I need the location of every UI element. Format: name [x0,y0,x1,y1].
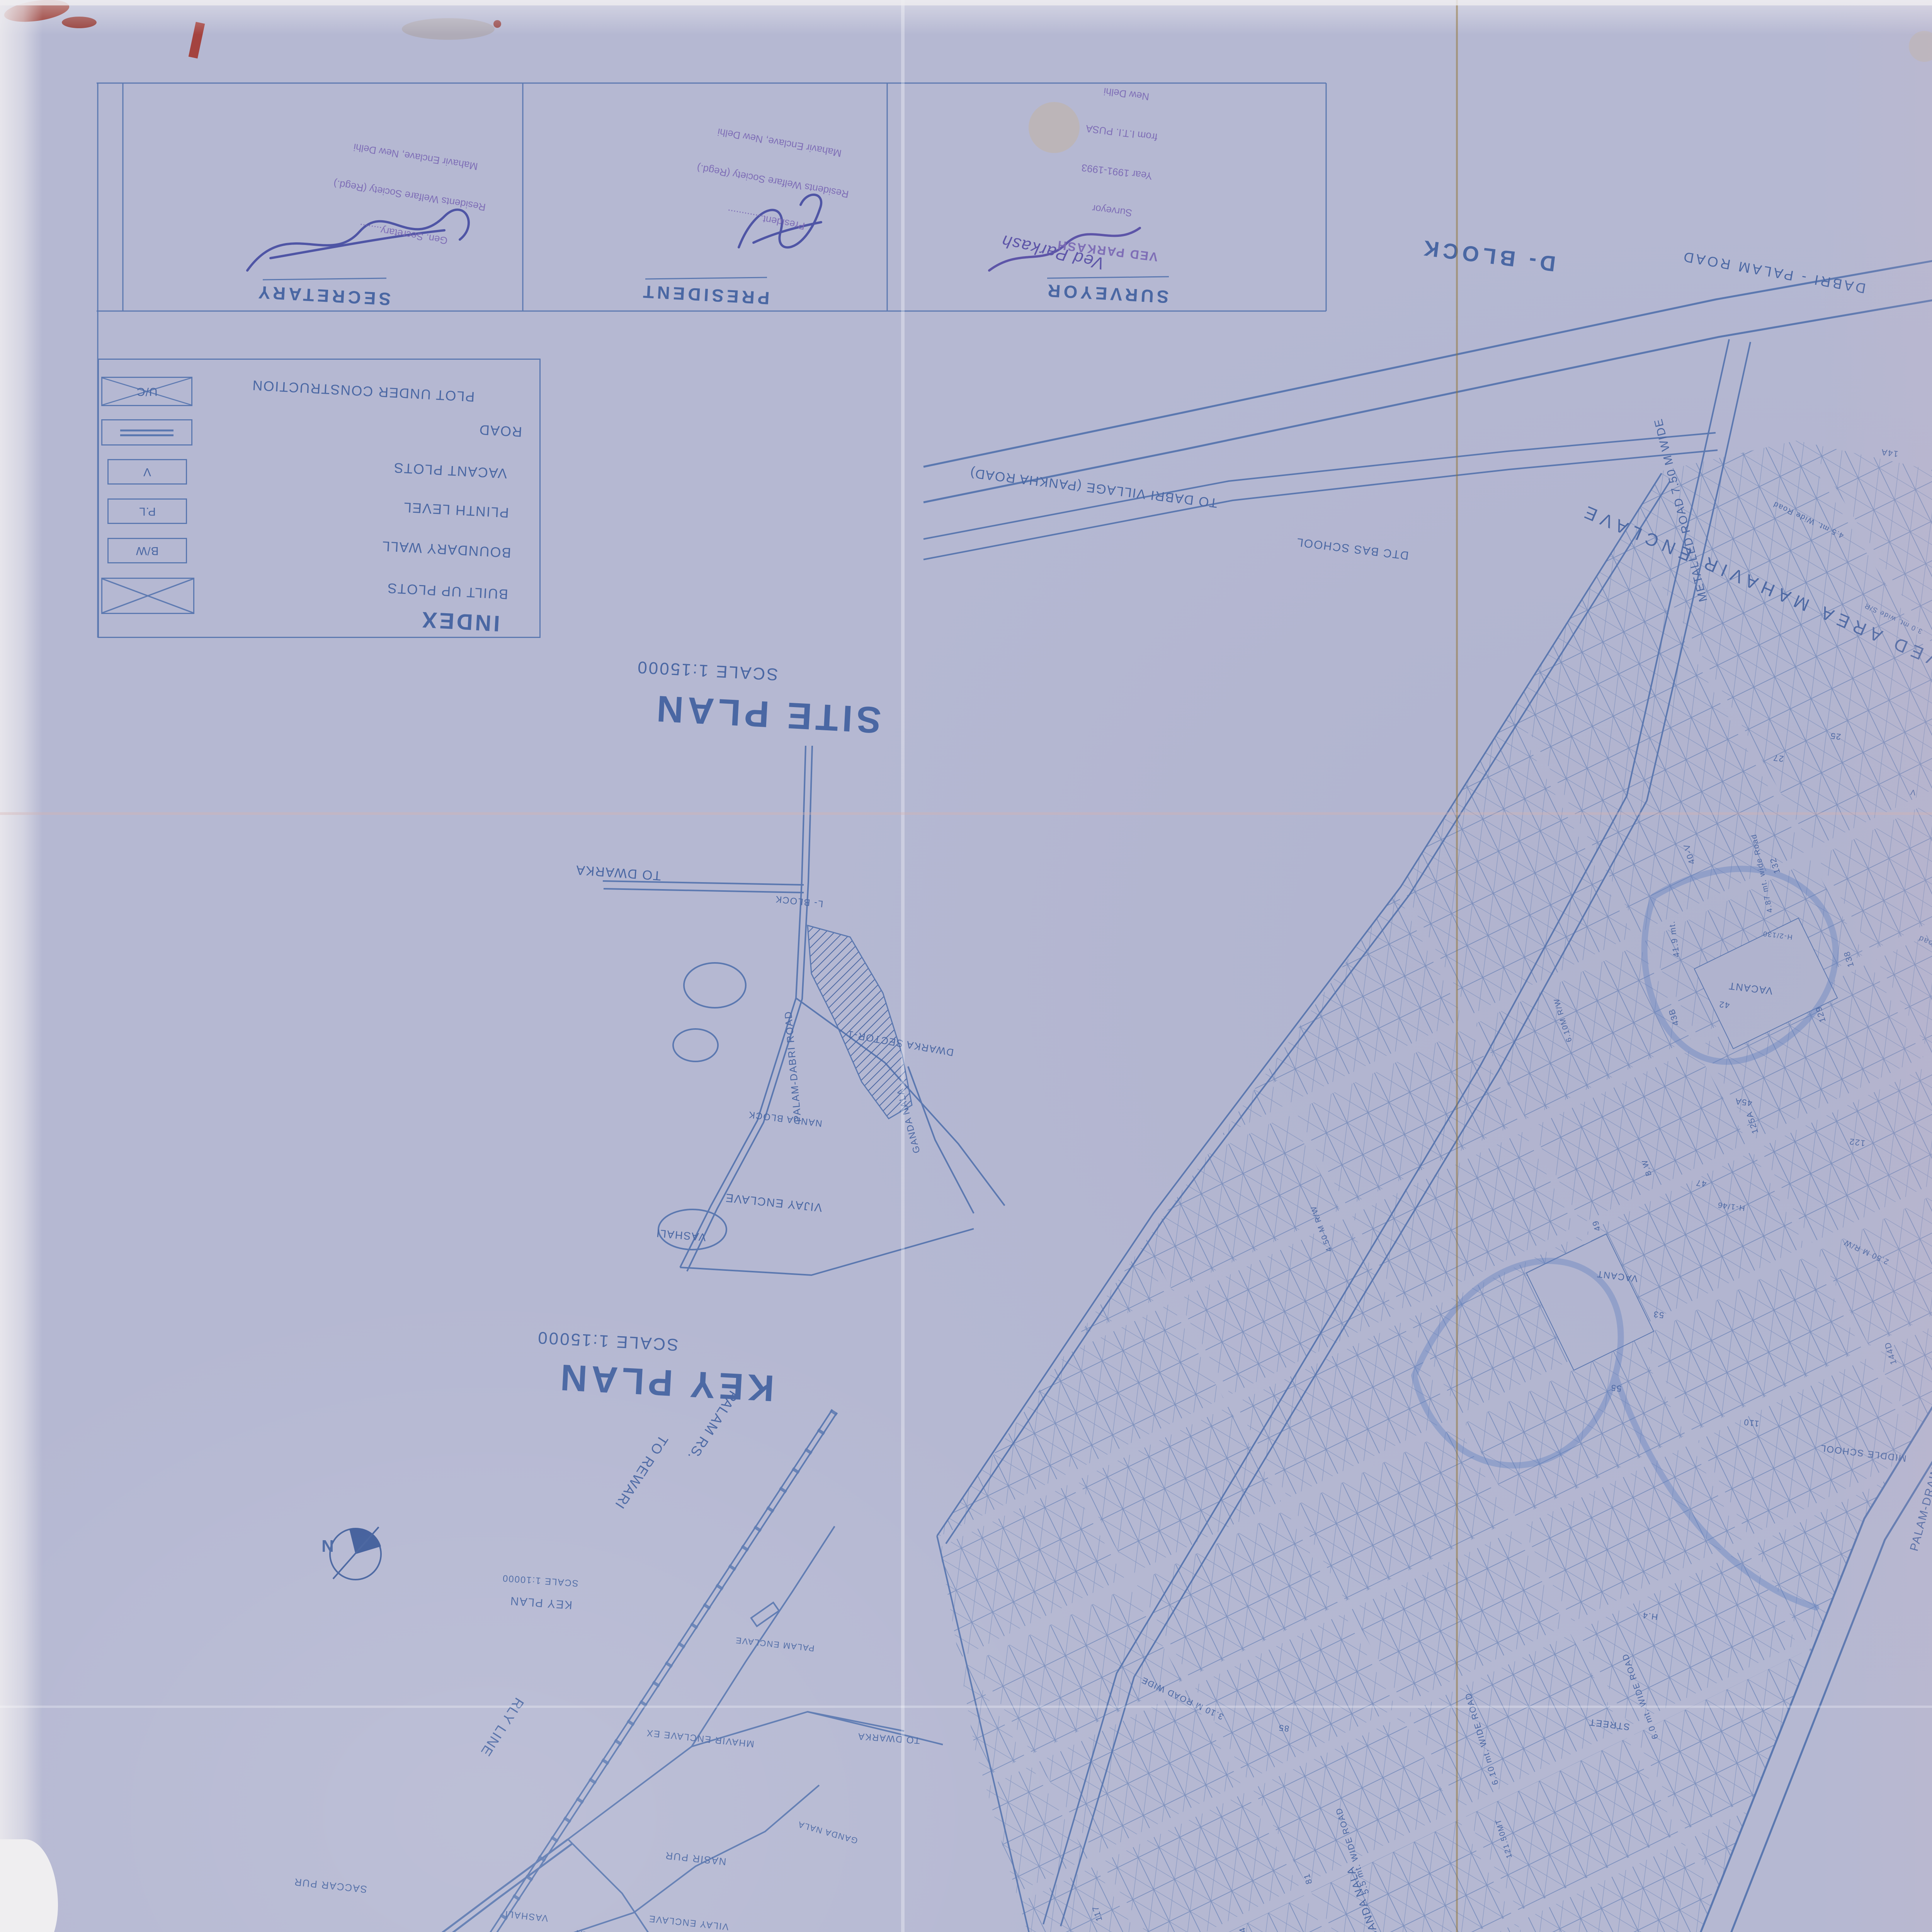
signature-rules [263,277,1169,280]
plot-label: 122 [1848,1136,1866,1148]
plot-label: 25 [1829,731,1841,741]
legend-symbol-road [101,419,192,446]
plot-label: 53 [1652,1309,1664,1320]
legend-symbol-plinth: P.L [107,498,187,524]
plot-fabric [889,406,1932,1932]
north-compass-keyplan [330,1527,381,1580]
plot-label: 85 [1277,1723,1289,1733]
plot-label: 27 [1772,753,1784,763]
plot-label: 42 [1718,999,1730,1010]
plot-label: 45A [1734,1096,1753,1108]
site-plan-sketch [603,746,1005,1275]
index-title: INDEX [419,607,500,636]
legend-symbol-under-construction: U/C [101,377,192,406]
red-marks [3,0,1932,153]
legend-symbol-boundary: B/W [107,538,187,563]
legend-label: ROAD [478,422,522,439]
plot-label: 47 [1695,1178,1707,1188]
north-letter-keyplan: N [321,1536,334,1555]
legend-symbol-vacant: V [107,459,187,485]
legend-symbol-builtup [101,578,194,614]
blueprint-sheet: SECRETARY PRESIDENT SURVEYOR Gen. Secret… [0,0,1932,1932]
plot-label: 110 [1743,1417,1760,1428]
key-plan-sketch [216,1410,943,1932]
plot-label: H.4 [1642,1611,1658,1622]
plot-label: 55 [1610,1383,1622,1393]
plot-label: 14A [1880,447,1899,459]
plot-label: V [1909,787,1916,797]
